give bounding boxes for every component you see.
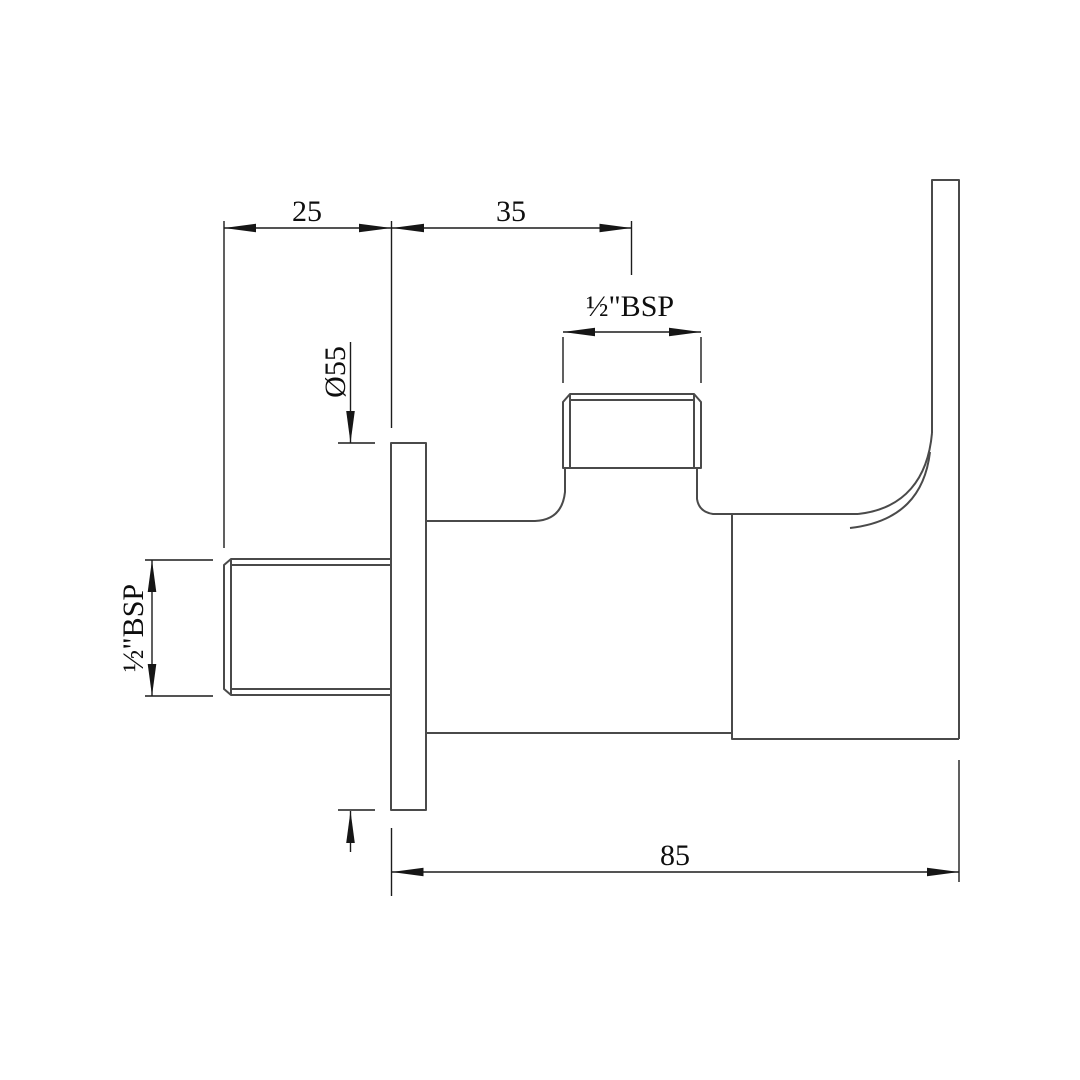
bonnet-outline <box>732 514 959 739</box>
dim-85-arrow-left <box>392 868 424 877</box>
dim-flange-dia-arrow-up <box>346 811 355 843</box>
handle-blade-outline <box>932 180 959 739</box>
drawing-stage: 25 35 ½"BSP <box>0 0 1080 1080</box>
dim-flange-dia-label: Ø55 <box>319 346 352 398</box>
dim-35-arrow-left <box>392 224 424 233</box>
dim-outlet-bsp-arrow-right <box>669 328 701 337</box>
dim-35-arrow-right <box>600 224 632 233</box>
dim-flange-dia-arrow-down <box>346 411 355 443</box>
dim-85-arrow-right <box>927 868 959 877</box>
valve-body-top-right-edge <box>697 468 732 514</box>
angle-valve-technical-drawing: 25 35 ½"BSP <box>0 0 1080 1080</box>
handle-heel-inner-curve <box>850 452 930 528</box>
handle-heel-outer-curve <box>858 433 932 514</box>
outlet-thread-minor-lines <box>570 394 694 468</box>
dim-85: 85 <box>392 760 960 896</box>
dim-25-label: 25 <box>292 195 322 228</box>
dim-85-label: 85 <box>660 839 690 872</box>
inlet-thread-outline <box>224 559 391 695</box>
dim-25-arrow-right <box>359 224 391 233</box>
outlet-thread-outline <box>563 394 701 468</box>
dim-outlet-bsp-label: ½"BSP <box>586 290 674 323</box>
dim-25-arrow-left <box>224 224 256 233</box>
part-outlines <box>224 180 959 810</box>
dim-35-label: 35 <box>496 195 526 228</box>
valve-body-top-left-edge <box>426 468 565 521</box>
dim-flange-dia: Ø55 <box>319 342 375 852</box>
dim-inlet-bsp-label: ½"BSP <box>117 584 150 672</box>
dim-inlet-bsp: ½"BSP <box>117 560 213 696</box>
dim-outlet-bsp: ½"BSP <box>563 290 701 383</box>
dimensions: 25 35 ½"BSP <box>117 195 959 896</box>
dim-25: 25 <box>224 195 392 548</box>
dim-35: 35 <box>392 195 632 275</box>
wall-flange-plate <box>391 443 426 810</box>
dim-outlet-bsp-arrow-left <box>563 328 595 337</box>
